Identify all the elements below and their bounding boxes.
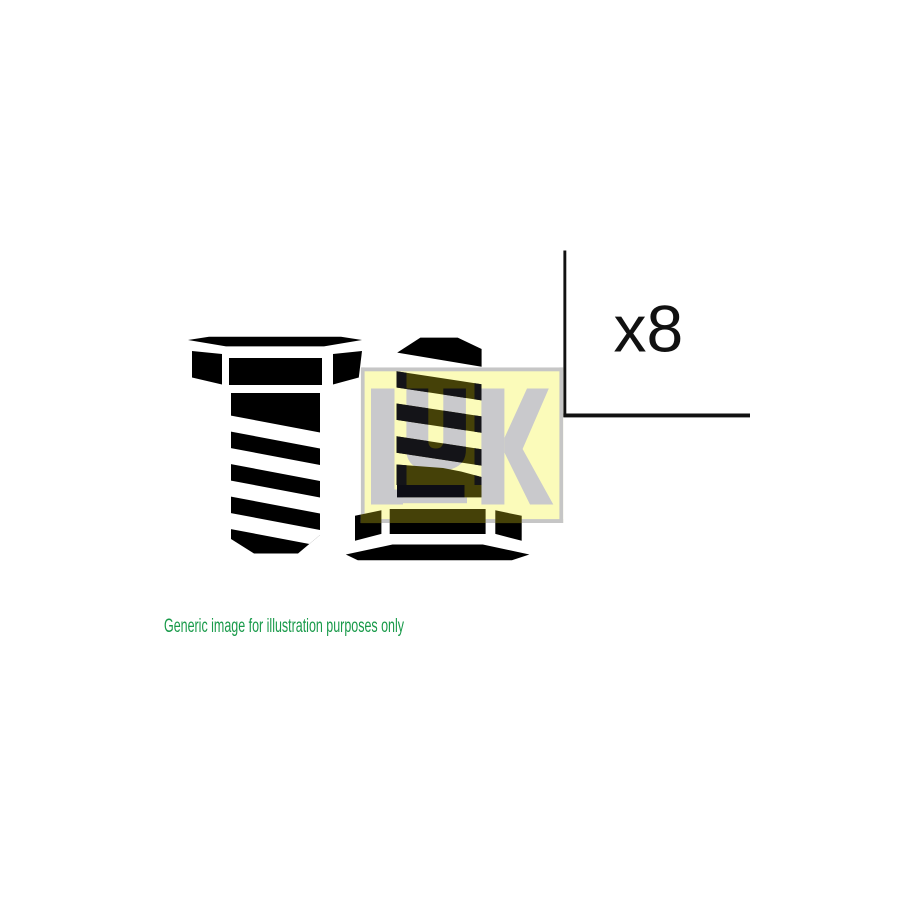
svg-text:Generic image for illustration: Generic image for illustration purposes … [164, 616, 404, 637]
svg-text:x8: x8 [614, 291, 684, 365]
